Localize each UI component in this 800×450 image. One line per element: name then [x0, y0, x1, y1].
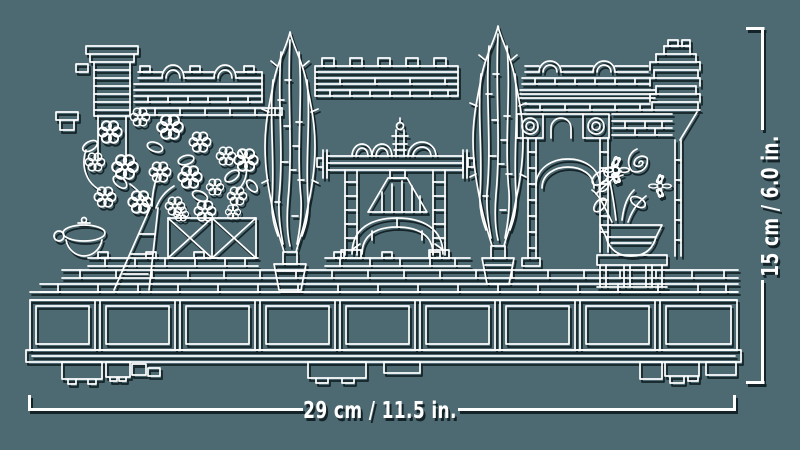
product-dimension-diagram: 29 cm / 11.5 in. 15 cm / 6.0 in.	[0, 0, 800, 450]
garden-wall-left	[56, 46, 282, 160]
teapot	[54, 218, 105, 257]
garden-wall-right	[517, 40, 700, 266]
base-feet	[62, 362, 736, 384]
garden-wall-middle	[315, 58, 458, 96]
spiral-rose	[629, 149, 648, 172]
moon-gate	[317, 118, 474, 258]
cypress-tree-right	[470, 26, 526, 284]
height-dimension-label: 15 cm / 6.0 in.	[756, 135, 783, 276]
cypress-tree-left	[262, 32, 318, 290]
blossom-tree	[54, 108, 260, 290]
width-dimension-label: 29 cm / 11.5 in.	[303, 396, 457, 423]
line-art-illustration: 29 cm / 11.5 in. 15 cm / 6.0 in.	[0, 0, 800, 450]
flower-pot-stand	[590, 149, 672, 287]
terrace-plates	[40, 252, 738, 292]
display-base	[26, 292, 741, 384]
